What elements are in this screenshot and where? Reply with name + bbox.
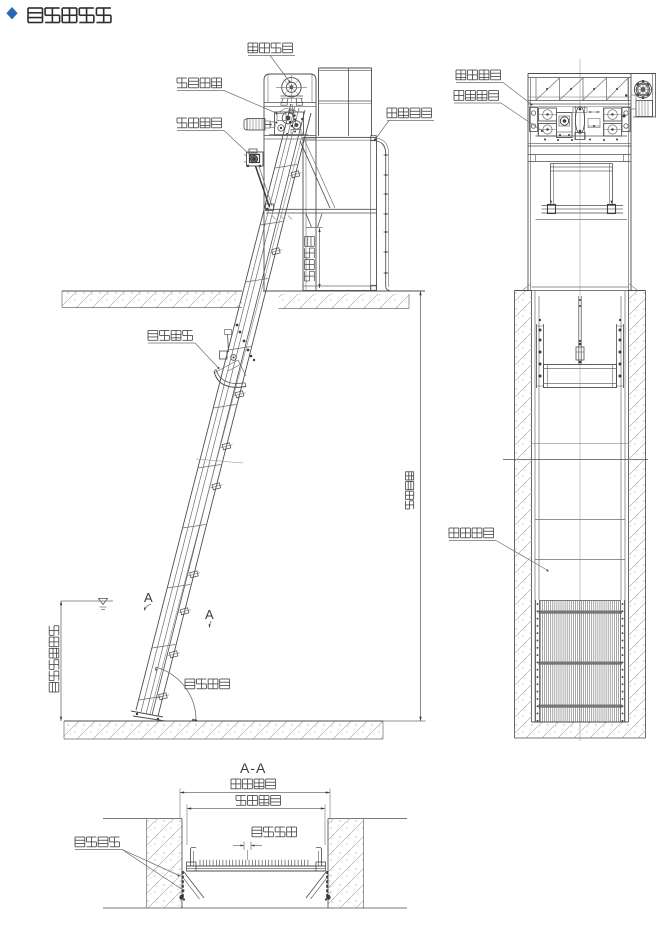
svg-text:A-A: A-A xyxy=(240,760,266,776)
svg-text:A: A xyxy=(144,590,153,605)
svg-text:A: A xyxy=(205,607,214,622)
